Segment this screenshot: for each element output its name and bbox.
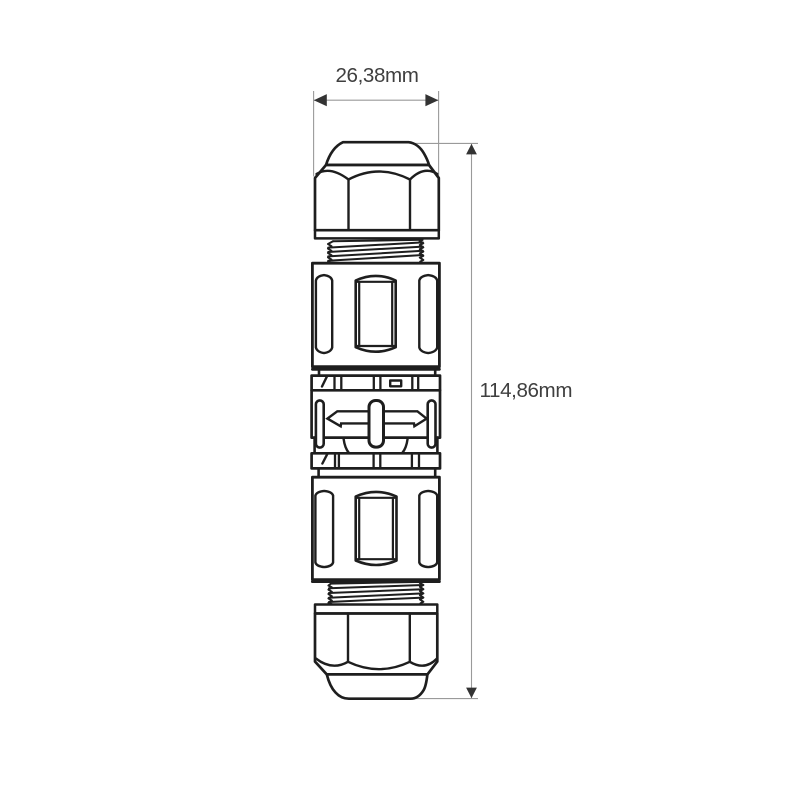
svg-text:26,38mm: 26,38mm xyxy=(335,64,418,87)
svg-text:114,86mm: 114,86mm xyxy=(480,379,573,402)
